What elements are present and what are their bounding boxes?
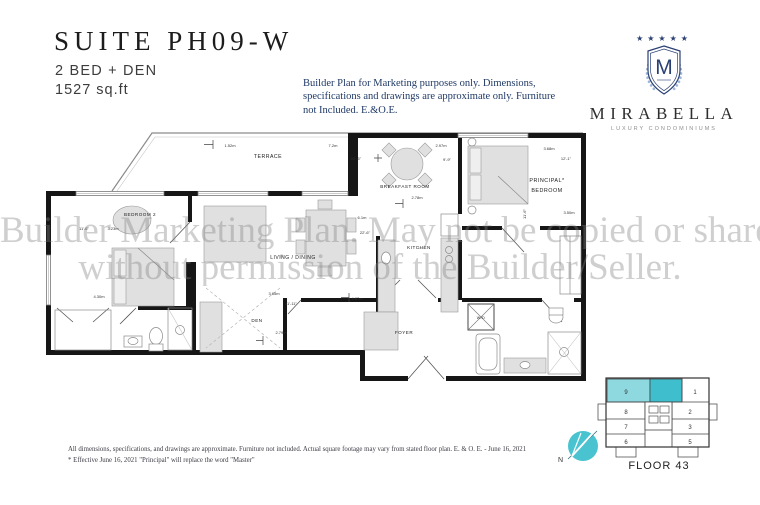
foyer-label: FOYER (395, 330, 414, 335)
logo-monogram: M (655, 56, 673, 79)
north-compass-icon: N (558, 431, 598, 464)
dim-den-d: 2.79m (275, 330, 287, 335)
highlighted-unit-part-b (650, 379, 682, 402)
logo-tagline: LUXURY CONDOMINIUMS (580, 126, 748, 132)
logo-name: MIRABELLA (580, 104, 748, 124)
dim-breakfast-d: 2.78m (411, 195, 423, 200)
footer-disclaimer-line2: * Effective June 16, 2021 "Principal" wi… (68, 457, 255, 464)
dim-bedroom2-w-ft: 11'-6" (79, 226, 89, 231)
dim-breakfast-w-ft: 9'-9" (443, 157, 452, 162)
dim-den-w-ft: 11'-11" (285, 301, 297, 306)
logo-shield-icon: M (641, 43, 687, 97)
dim-principal-w-ft: 12'-1" (561, 156, 572, 161)
terrace-label: TERRACE (254, 154, 282, 160)
dim-living-l-ft: 22'-6" (360, 230, 371, 235)
dim-breakfast-w: 2.97m (435, 143, 447, 148)
dim-terrace-w: 1.52m (224, 143, 236, 148)
dim-bedroom2-w: 3.23m (107, 226, 119, 231)
wd-label: W/D (477, 316, 486, 320)
suite-area: 1527 sq.ft (55, 82, 129, 98)
dim-bedroom2-l: 4.30m (93, 294, 105, 299)
furniture (55, 138, 581, 374)
dim-living-w-ft: 22'-6" (351, 156, 362, 161)
elevator-core (645, 402, 672, 430)
floor-label: FLOOR 43 (628, 460, 689, 472)
dim-principal-w: 3.68m (543, 146, 555, 151)
dim-terrace-l: 7.2m (329, 143, 339, 148)
den-label: DEN (251, 318, 262, 323)
floorplan-drawing: TERRACE BEDROOM 2 LIVING / DINING BREAKF… (25, 112, 600, 387)
bed-config: 2 BED + DEN (55, 63, 157, 79)
floor-keyplate: 9 1 8 2 7 3 6 5 FLOOR 43 N (548, 366, 760, 478)
dim-den-w: 3.65m (268, 291, 280, 296)
logo-stars: ★★★★★ (580, 34, 748, 43)
dim-kitchen-l: 4.87m (351, 296, 363, 301)
north-label: N (558, 457, 563, 464)
footer-disclaimer-line1: All dimensions, specifications, and draw… (68, 446, 526, 453)
dim-living-l: 6.1m (358, 215, 368, 220)
dim-principal-d-ft: 11'-6" (522, 208, 527, 218)
kitchen-label: KITCHEN (407, 245, 431, 250)
principal-bedroom-label-1: PRINCIPAL* (529, 178, 565, 184)
living-dining-label: LIVING / DINING (270, 255, 316, 261)
highlighted-unit-part-a (607, 379, 650, 402)
mirabella-logo: ★★★★★ M MIRABELLA LUXURY CONDOMINIUMS (580, 34, 748, 132)
dim-principal-d: 3.50m (563, 210, 575, 215)
principal-bedroom-label-2: BEDROOM (531, 188, 562, 194)
floorplan-page: SUITE PH09-W 2 BED + DEN 1527 sq.ft Buil… (0, 0, 760, 505)
breakfast-room-label: BREAKFAST ROOM (380, 184, 430, 189)
keyplate-building: 9 1 8 2 7 3 6 5 FLOOR 43 (598, 378, 717, 472)
bedroom2-label: BEDROOM 2 (124, 212, 156, 217)
suite-title: SUITE PH09-W (54, 26, 293, 57)
